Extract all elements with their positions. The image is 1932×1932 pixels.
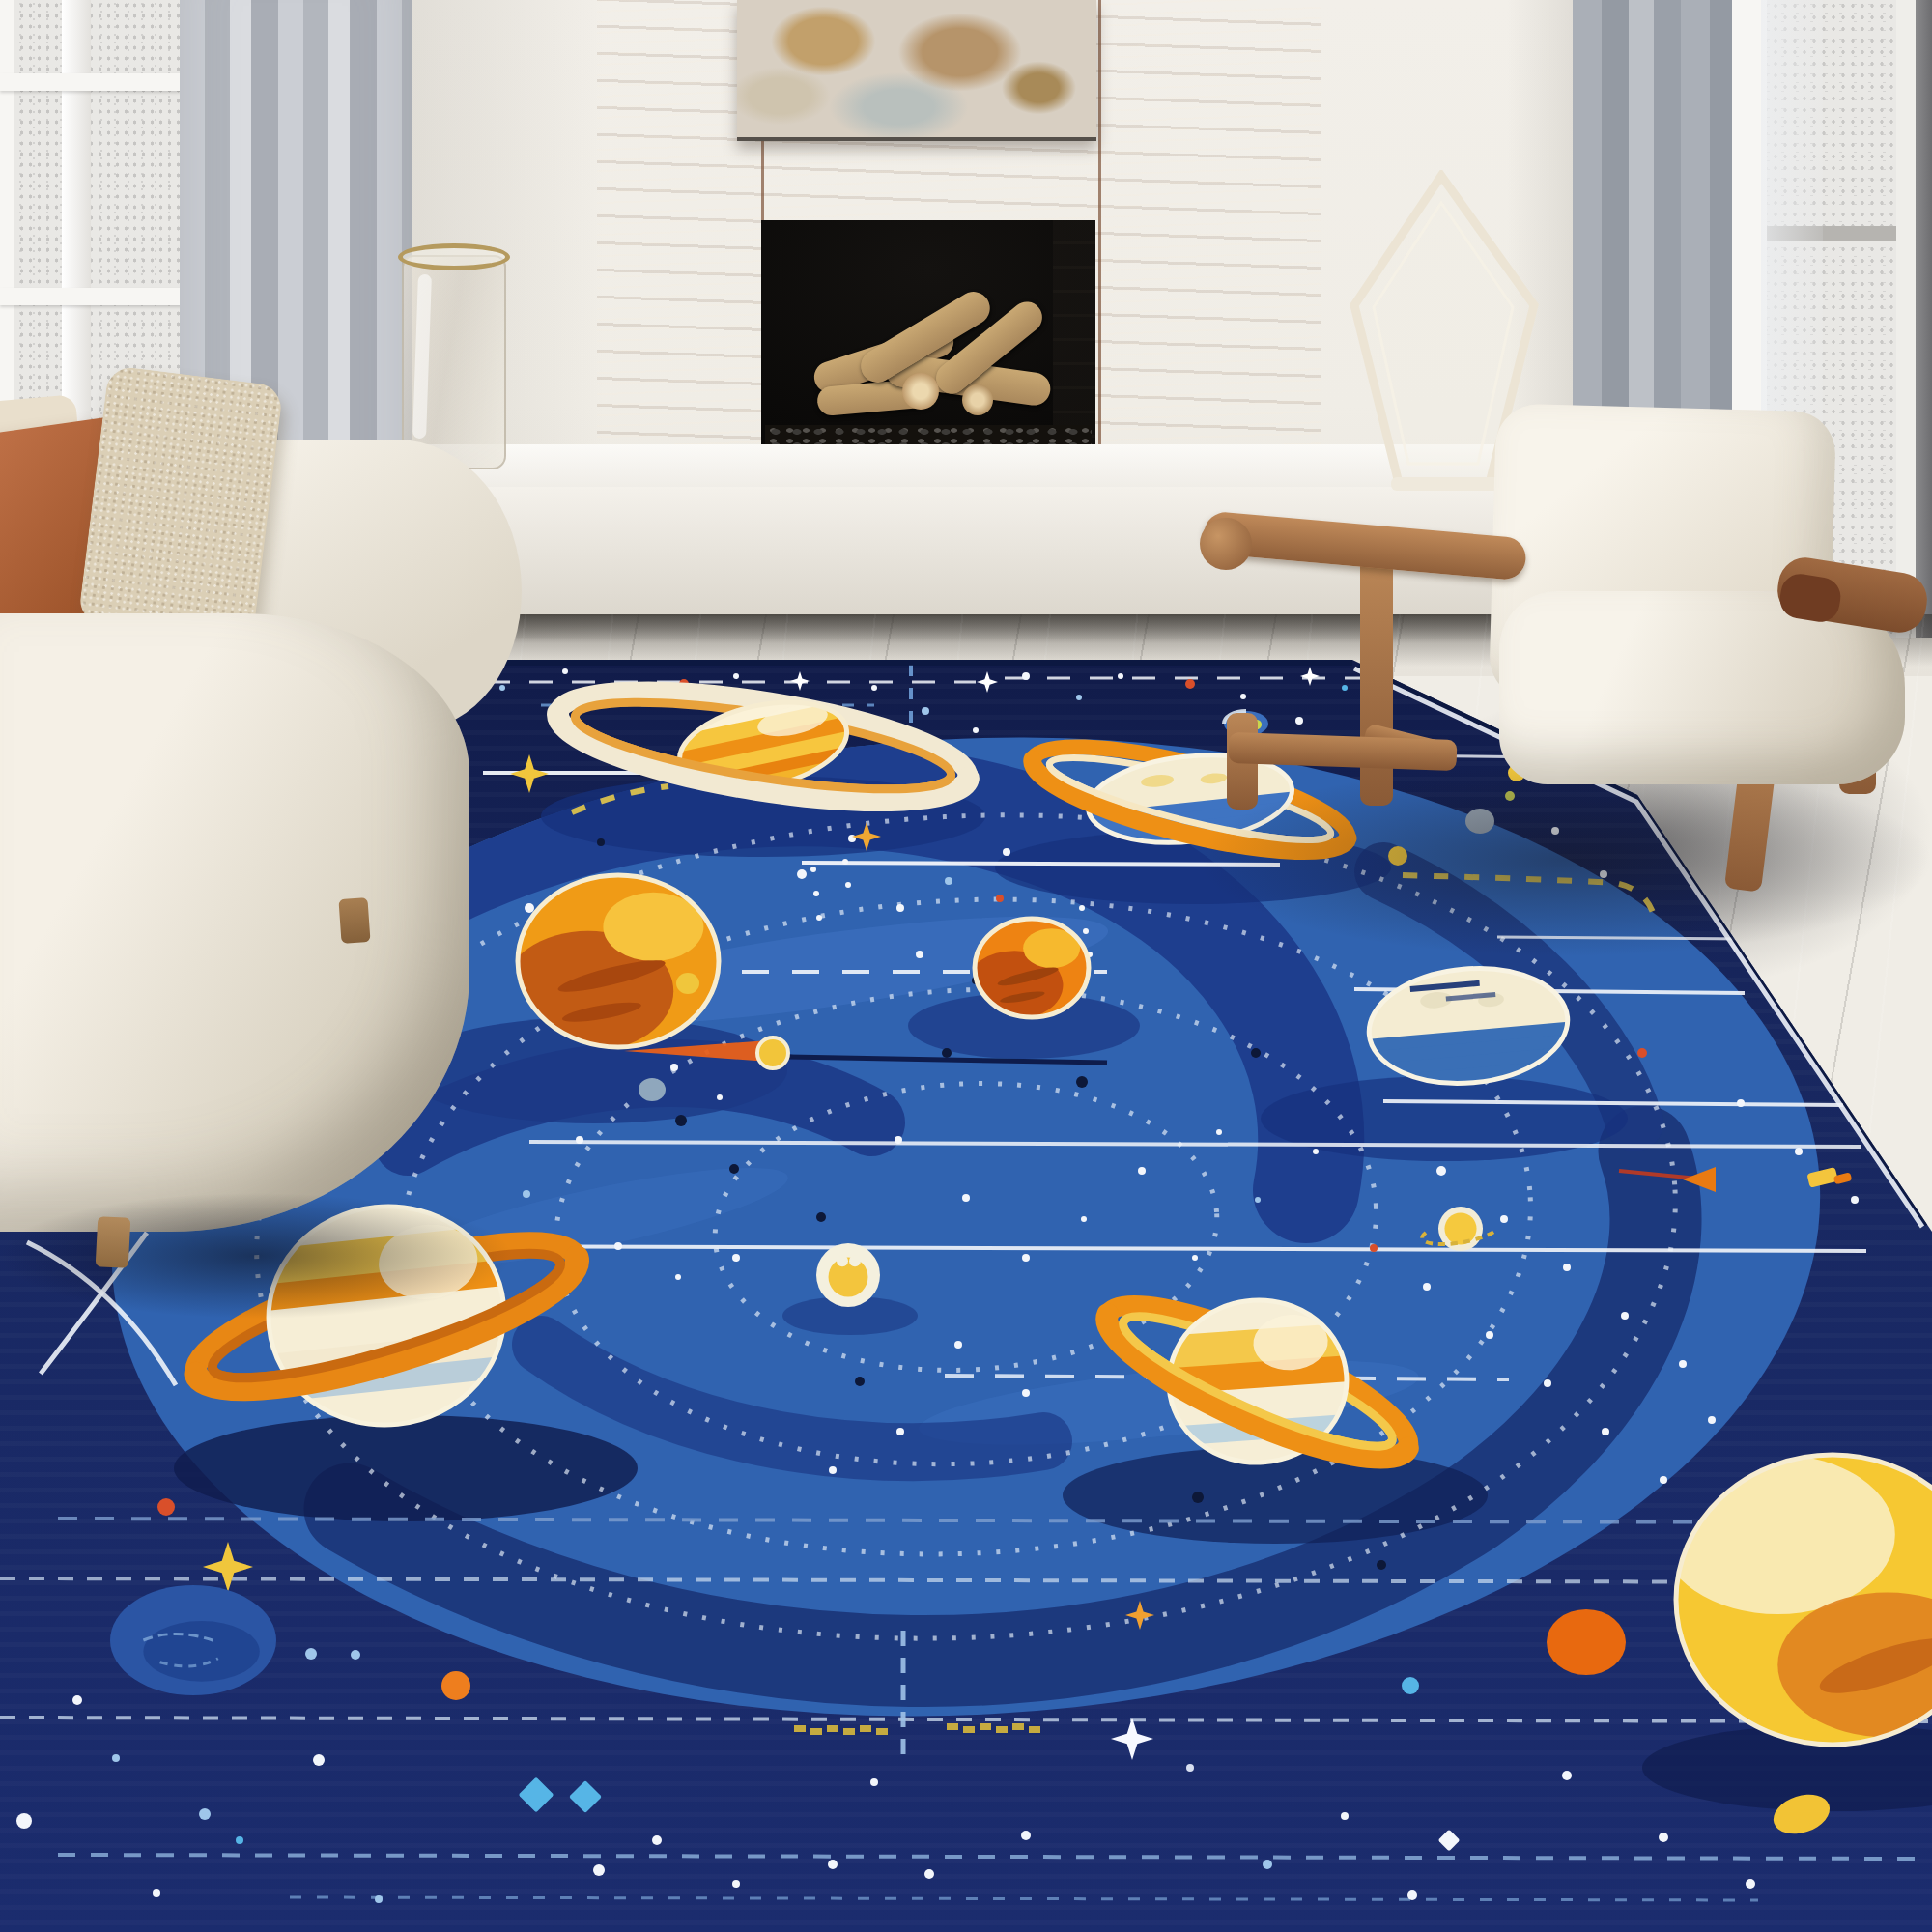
yellow-mid [676,973,699,994]
sofa-shadow [0,1193,512,1319]
window-left-sash-bar [0,73,189,91]
orange-mini [1547,1609,1626,1675]
log-cut-end [902,373,939,410]
armchair-shadow [1198,763,1932,956]
sofa [0,367,560,1294]
log-cut-end [962,384,993,415]
abstract-art [737,0,1096,141]
sofa-seat [0,613,469,1232]
navy-planet [110,1585,276,1695]
pillow-beige [77,365,283,643]
firebox [761,220,1095,464]
wood-panel-seam [1098,0,1101,488]
moon-gray-1 [639,1078,666,1101]
sofa-leg [338,897,370,944]
sun-small [816,1243,880,1307]
armchair [1140,386,1932,985]
armchair-armrest-curl [1200,518,1252,570]
living-room-scene [0,0,1932,1932]
window-left-sash-bar [0,288,189,305]
glass-vase-gold-rim [398,243,510,270]
sofa-leg [96,1216,131,1268]
